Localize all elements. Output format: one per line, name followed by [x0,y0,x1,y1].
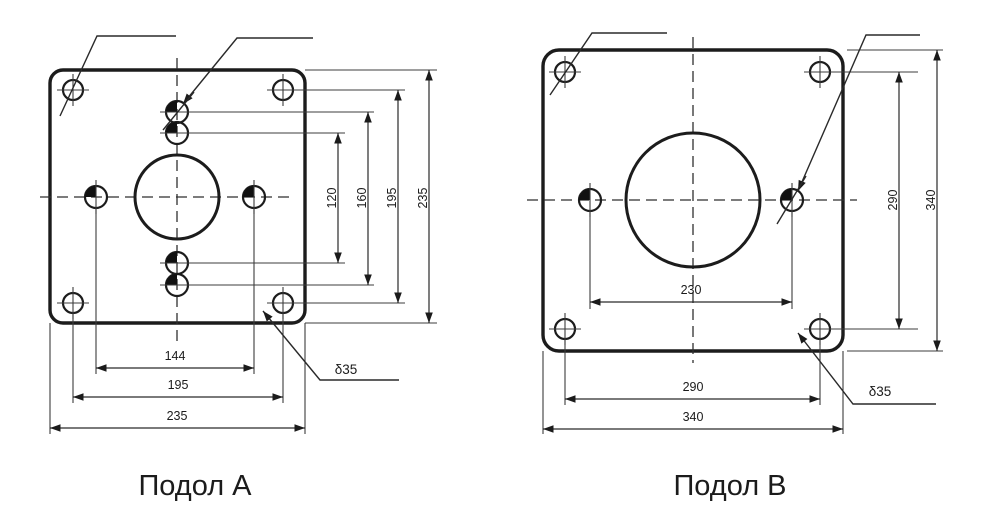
dim-plate-width-b: 340 [543,410,843,429]
drawing-a: 120 160 195 235 144 195 235 [40,36,437,502]
dim-label: 235 [416,188,430,209]
dim-plate-height-a: 235 [416,70,430,323]
dim-plate-width-a: 235 [50,409,305,428]
centerlines-b [527,37,857,363]
title-b: Подол В [673,470,786,502]
dim-label: 340 [924,190,938,211]
dim-side-hole-spacing-h-b: 230 [590,283,792,302]
thickness-label: δ35 [869,384,892,399]
dim-label: 230 [681,283,702,297]
dim-inner-hole-spacing-v-a: 120 [325,133,339,263]
dim-label: 195 [385,188,399,209]
dim-label: 120 [325,188,339,209]
technical-drawing: 120 160 195 235 144 195 235 [0,0,1000,531]
thickness-label: δ35 [335,362,358,377]
leader-corner-hole-b [550,33,667,95]
pattern-holes-a [85,101,265,296]
thickness-leader [798,333,936,404]
dim-plate-height-b: 340 [924,50,938,351]
hole-quadrant-fills-a [85,101,254,285]
pattern-drawing-page: 120 160 195 235 144 195 235 [0,0,1000,531]
dim-corner-hole-spacing-v-b: 290 [886,72,900,329]
dim-corner-hole-spacing-h-a: 195 [73,378,283,397]
dim-label: 235 [167,409,188,423]
leader-line [798,35,920,191]
title-a: Подол А [138,470,252,502]
leader-corner-hole-a [60,36,176,116]
dim-corner-hole-spacing-h-b: 290 [565,380,820,399]
dim-label: 340 [683,410,704,424]
drawing-b: 230 290 340 290 340 δ35 Подо [527,33,943,502]
dim-corner-hole-spacing-v-a: 195 [385,90,399,303]
dim-label: 290 [886,190,900,211]
thickness-callout-b: δ35 [798,333,936,404]
dim-label: 144 [165,349,186,363]
dim-outer-hole-spacing-v-a: 160 [355,112,369,285]
dim-label: 195 [168,378,189,392]
dim-label: 160 [355,188,369,209]
extension-lines-b [543,50,943,434]
dim-label: 290 [683,380,704,394]
dim-side-hole-spacing-h-a: 144 [96,349,254,368]
